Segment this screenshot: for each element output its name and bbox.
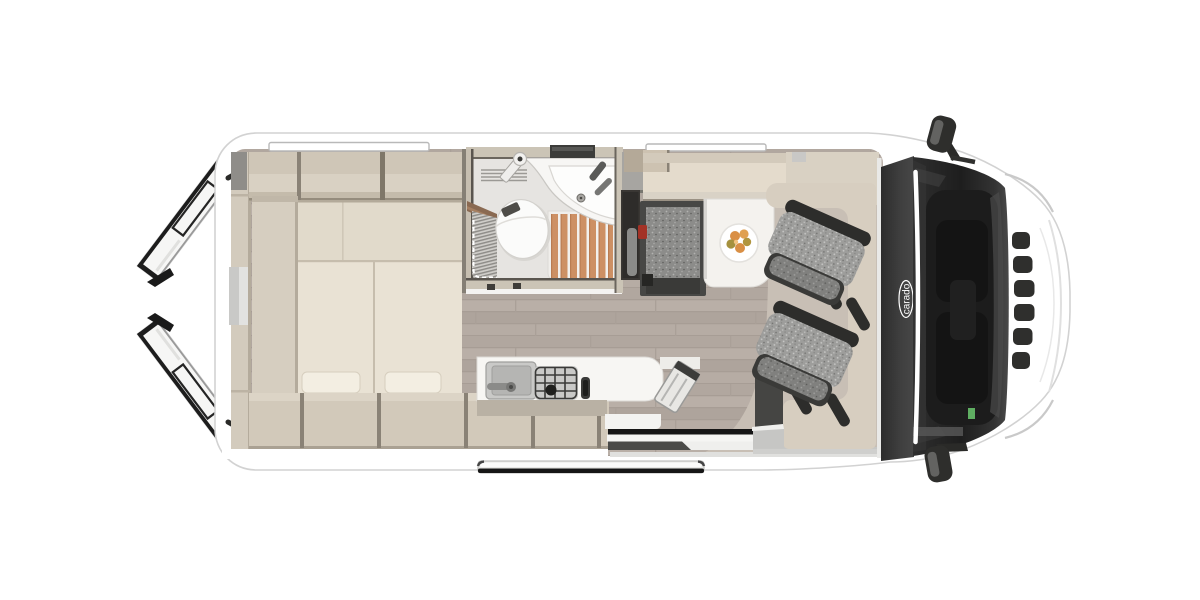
svg-text:carado: carado [901, 283, 912, 314]
